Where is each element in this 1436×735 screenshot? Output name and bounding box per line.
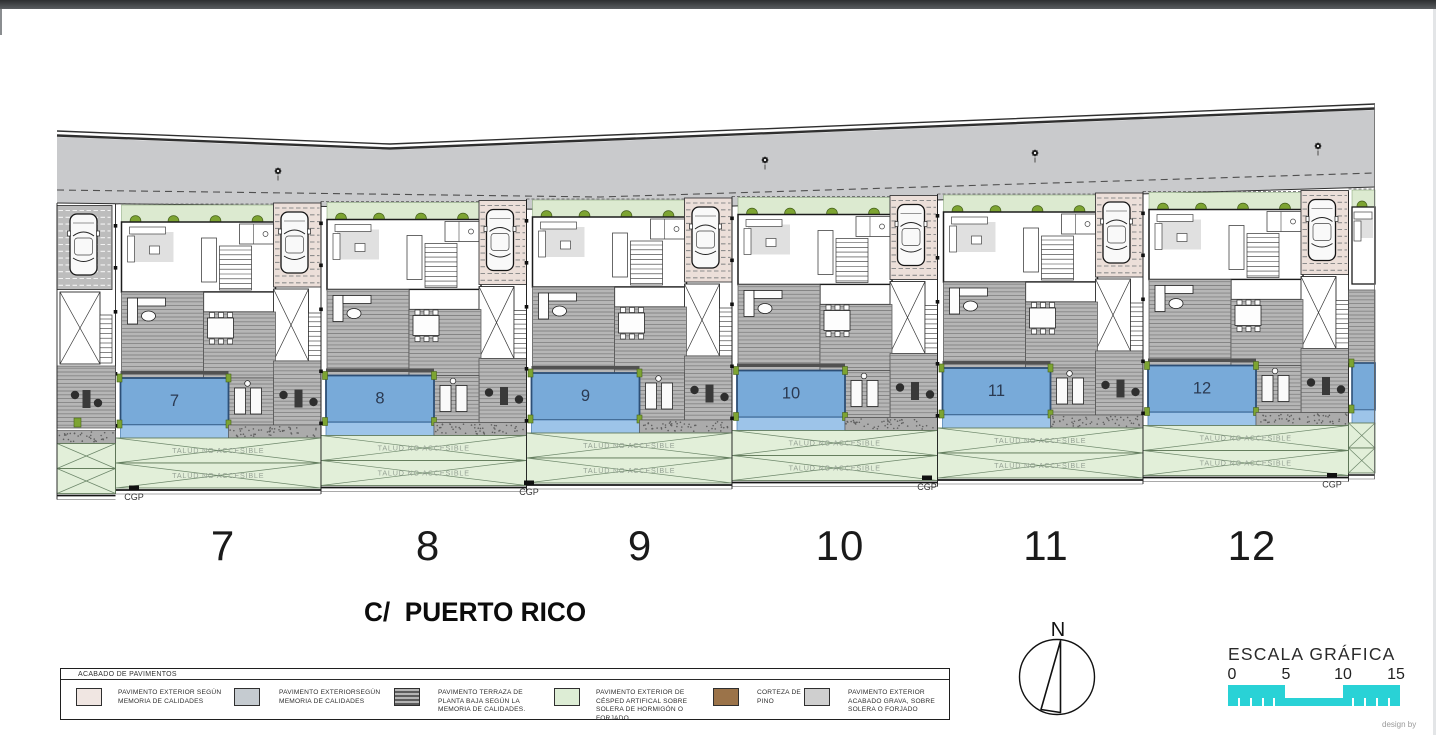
north-label: N	[1051, 619, 1065, 641]
scale-ticks: 0 5 10 15	[1228, 666, 1400, 684]
legend-swatch-corteza	[713, 688, 739, 706]
svg-text:TALUD NO ACCESIBLE: TALUD NO ACCESIBLE	[583, 466, 675, 475]
scale-tick-5: 5	[1282, 666, 1291, 684]
svg-text:TALUD NO ACCESIBLE: TALUD NO ACCESIBLE	[583, 441, 675, 450]
lot-number-9: 9	[628, 522, 652, 570]
svg-text:TALUD NO ACCESIBLE: TALUD NO ACCESIBLE	[1200, 434, 1292, 443]
pool-number: 7	[170, 392, 179, 410]
svg-text:TALUD NO ACCESIBLE: TALUD NO ACCESIBLE	[378, 469, 470, 478]
legend-label: PAVIMENTO TERRAZA DE PLANTA BAJA SEGÚN L…	[438, 689, 550, 715]
svg-text:TALUD NO ACCESIBLE: TALUD NO ACCESIBLE	[994, 436, 1086, 445]
pool-number: 10	[782, 385, 800, 403]
svg-text:TALUD NO ACCESIBLE: TALUD NO ACCESIBLE	[994, 461, 1086, 470]
svg-text:CGP: CGP	[917, 482, 937, 492]
legend-swatch-terraza	[394, 688, 420, 706]
svg-text:TALUD NO ACCESIBLE: TALUD NO ACCESIBLE	[378, 444, 470, 453]
site-plan: 7TALUD NO ACCESIBLETALUD NO ACCESIBLE8TA…	[57, 104, 1375, 715]
pavement-legend: ACABADO DE PAVIMENTOS PAVIMENTO EXTERIOR…	[60, 668, 950, 720]
lot-number-10: 10	[816, 522, 865, 570]
legend-swatch-pavimento-exterior-2	[234, 688, 260, 706]
villa-unit: 8TALUD NO ACCESIBLETALUD NO ACCESIBLE	[319, 201, 526, 492]
svg-text:TALUD NO ACCESIBLE: TALUD NO ACCESIBLE	[789, 464, 881, 473]
north-arrow: N	[1020, 619, 1095, 715]
legend-swatch-pavimento-exterior-1	[76, 688, 102, 706]
villa-unit: 12TALUD NO ACCESIBLETALUD NO ACCESIBLE	[1141, 191, 1348, 482]
svg-text:CGP: CGP	[519, 487, 539, 497]
legend-title: ACABADO DE PAVIMENTOS	[61, 669, 949, 680]
lot-number-7: 7	[211, 522, 235, 570]
villa-unit: 9TALUD NO ACCESIBLETALUD NO ACCESIBLE	[525, 198, 732, 489]
lot-number-8: 8	[416, 522, 440, 570]
graphic-scale: ESCALA GRÁFICA 0 5 10 15	[1228, 644, 1418, 706]
pool-number: 12	[1193, 380, 1211, 398]
street-name: C/ PUERTO RICO	[364, 597, 586, 628]
plan-page: 7TALUD NO ACCESIBLETALUD NO ACCESIBLE8TA…	[0, 0, 1436, 735]
partial-unit-left	[57, 203, 116, 500]
pool-number: 8	[375, 390, 384, 408]
villa-unit: 10TALUD NO ACCESIBLETALUD NO ACCESIBLE	[730, 196, 937, 487]
svg-text:CGP: CGP	[124, 492, 144, 502]
legend-swatch-grava	[804, 688, 830, 706]
svg-text:TALUD NO ACCESIBLE: TALUD NO ACCESIBLE	[1200, 459, 1292, 468]
lot-number-12: 12	[1228, 522, 1277, 570]
villa-unit: 7TALUD NO ACCESIBLETALUD NO ACCESIBLE	[114, 203, 321, 494]
svg-text:TALUD NO ACCESIBLE: TALUD NO ACCESIBLE	[172, 446, 264, 455]
legend-label: PAVIMENTO EXTERIOR SEGÚN MEMORIA DE CALI…	[118, 689, 230, 706]
legend-label: PAVIMENTO EXTERIOR DE CÉSPED ARTIFICAL S…	[596, 689, 708, 724]
legend-label: PAVIMENTO EXTERIOR ACABADO GRAVA, SOBRE …	[848, 689, 960, 715]
svg-text:TALUD NO ACCESIBLE: TALUD NO ACCESIBLE	[172, 471, 264, 480]
site-plan-svg: 7TALUD NO ACCESIBLETALUD NO ACCESIBLE8TA…	[0, 0, 1436, 735]
legend-swatch-cesped	[554, 688, 580, 706]
scale-tick-10: 10	[1334, 666, 1352, 684]
lot-number-11: 11	[1023, 522, 1069, 570]
pool-number: 11	[988, 382, 1005, 400]
villa-unit: 11TALUD NO ACCESIBLETALUD NO ACCESIBLE	[936, 193, 1143, 484]
scale-bar	[1228, 685, 1400, 706]
scale-title: ESCALA GRÁFICA	[1228, 644, 1418, 665]
pool-number: 9	[581, 387, 590, 405]
scale-tick-15: 15	[1387, 666, 1405, 684]
design-credit: design by	[1382, 720, 1416, 729]
scale-tick-0: 0	[1228, 666, 1237, 684]
legend-label: PAVIMENTO EXTERIORSEGÚN MEMORIA DE CALID…	[279, 689, 391, 706]
svg-text:CGP: CGP	[1322, 480, 1342, 490]
svg-text:TALUD NO ACCESIBLE: TALUD NO ACCESIBLE	[789, 439, 881, 448]
